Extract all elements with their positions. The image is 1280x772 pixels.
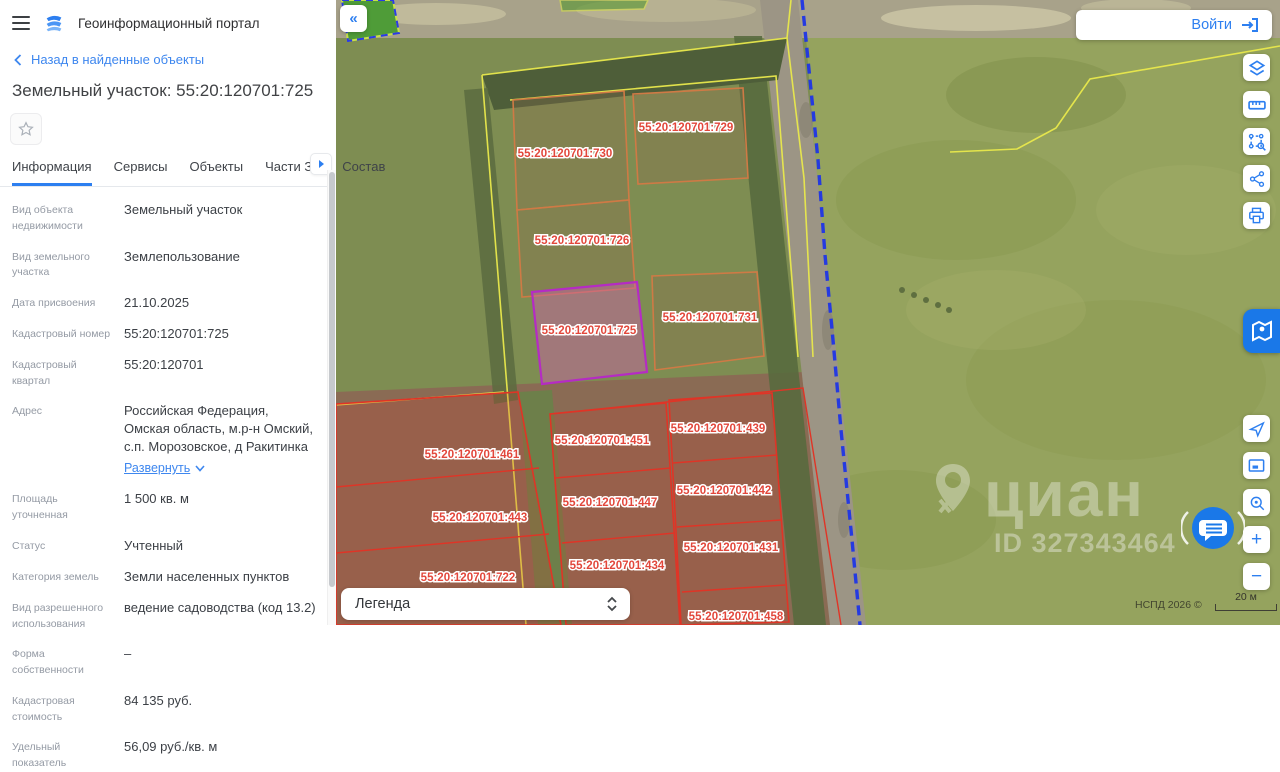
field-value: Учтенный [116, 537, 183, 555]
field-value: ведение садоводства (код 13.2) [116, 599, 316, 633]
parcel-726[interactable] [517, 200, 635, 297]
menu-button[interactable] [12, 16, 30, 30]
area-select-button[interactable] [1243, 128, 1270, 155]
parcel-label: 55:20:120701:434 [570, 560, 665, 572]
print-icon [1247, 206, 1266, 225]
field-label: Категория земель [12, 568, 116, 586]
field-label: Адрес [12, 402, 116, 477]
field-row: Форма собственности– [12, 645, 316, 679]
parcel-label: 55:20:120701:722 [421, 572, 516, 584]
portal-logo-icon [43, 12, 65, 34]
parcel-label: 55:20:120701:730 [518, 148, 613, 160]
field-row: АдресРоссийская Федерация, Омская област… [12, 402, 316, 477]
field-row: Вид разрешенного использованияведение са… [12, 599, 316, 633]
coordinate-search-icon [1248, 494, 1266, 512]
field-row: Кадастровый номер55:20:120701:725 [12, 325, 316, 343]
favorite-button[interactable] [10, 113, 42, 145]
parcel-label: 55:20:120701:451 [555, 435, 650, 447]
nspd-map-icon [1250, 318, 1274, 344]
field-label: Вид разрешенного использования [12, 599, 116, 633]
login-arrow-icon [1240, 16, 1260, 34]
field-row: Площадь уточненная1 500 кв. м [12, 490, 316, 524]
field-label: Вид объекта недвижимости [12, 201, 116, 235]
parcel-label: 55:20:120701:458 [689, 611, 784, 623]
parcel-label: 55:20:120701:443 [433, 512, 528, 524]
collapse-panel-button[interactable]: « [340, 5, 367, 32]
scale-label: 20 м [1216, 591, 1276, 603]
field-value: Российская Федерация, Омская область, м.… [116, 402, 316, 477]
field-value: 1 500 кв. м [116, 490, 189, 524]
tab-2[interactable]: Объекты [189, 159, 243, 186]
tab-0[interactable]: Информация [12, 159, 92, 186]
field-row: Дата присвоения21.10.2025 [12, 294, 316, 312]
panel-header: Геоинформационный портал [0, 0, 336, 42]
field-row: Удельный показатель56,09 руб./кв. м [12, 738, 316, 772]
parcel-label: 55:20:120701:461 [425, 449, 520, 461]
field-value: 21.10.2025 [116, 294, 189, 312]
chat-bubble-icon [1181, 500, 1245, 556]
parcel-729[interactable] [633, 88, 748, 184]
login-button[interactable]: Войти [1076, 10, 1272, 40]
parcel-label: 55:20:120701:447 [563, 497, 658, 509]
field-label: Кадастровый квартал [12, 356, 116, 390]
field-row: Категория земельЗемли населенных пунктов [12, 568, 316, 586]
field-label: Вид земельного участка [12, 248, 116, 282]
chat-button[interactable] [1181, 500, 1245, 556]
zoom-in-button[interactable]: + [1243, 526, 1270, 553]
nspd-logo-button[interactable] [1243, 309, 1280, 353]
info-panel: Геоинформационный портал Назад в найденн… [0, 0, 336, 625]
field-label: Кадастровая стоимость [12, 692, 116, 726]
field-value: Земли населенных пунктов [116, 568, 289, 586]
parcel-label: 55:20:120701:731 [663, 312, 758, 324]
parcel-label: 55:20:120701:439 [671, 423, 766, 435]
unfold-icon [606, 596, 618, 612]
field-value: 56,09 руб./кв. м [116, 738, 217, 772]
minimap-button[interactable] [1243, 452, 1270, 479]
parcel-label: 55:20:120701:729 [639, 122, 734, 134]
star-icon [17, 120, 35, 138]
minimap-icon [1247, 456, 1266, 475]
field-row: Кадастровый квартал55:20:120701 [12, 356, 316, 390]
area-select-icon [1247, 132, 1267, 152]
page-title: Земельный участок: 55:20:120701:725 [0, 69, 336, 101]
panel-scrollbar[interactable] [327, 170, 336, 625]
field-label: Форма собственности [12, 645, 116, 679]
portal-title: Геоинформационный портал [78, 16, 259, 31]
map-viewport[interactable]: 55:20:120701:73055:20:120701:72955:20:12… [336, 0, 1280, 625]
field-row: Кадастровая стоимость84 135 руб. [12, 692, 316, 726]
field-row: Вид объекта недвижимостиЗемельный участо… [12, 201, 316, 235]
back-link-label: Назад в найденные объекты [31, 52, 204, 67]
field-label: Площадь уточненная [12, 490, 116, 524]
parcel-label: 55:20:120701:726 [535, 235, 630, 247]
ruler-icon [1247, 95, 1267, 115]
share-icon [1248, 170, 1266, 188]
print-button[interactable] [1243, 202, 1270, 229]
field-value: 55:20:120701 [116, 356, 204, 390]
parcel-label: 55:20:120701:442 [677, 485, 772, 497]
satellite-map[interactable]: 55:20:120701:73055:20:120701:72955:20:12… [336, 0, 1280, 625]
expand-address-link[interactable]: Развернуть [124, 460, 316, 477]
field-label: Удельный показатель [12, 738, 116, 772]
zoom-out-button[interactable]: − [1243, 563, 1270, 590]
back-link[interactable]: Назад в найденные объекты [0, 42, 336, 69]
field-value: 55:20:120701:725 [116, 325, 229, 343]
field-label: Кадастровый номер [12, 325, 116, 343]
field-value: 84 135 руб. [116, 692, 192, 726]
legend-label: Легенда [355, 596, 410, 612]
field-row: Вид земельного участкаЗемлепользование [12, 248, 316, 282]
scrollbar-thumb[interactable] [329, 172, 335, 587]
legend-dropdown[interactable]: Легенда [341, 588, 630, 620]
chevron-down-icon [195, 465, 205, 472]
chevron-left-icon [14, 54, 22, 66]
parcel-label: 55:20:120701:431 [684, 542, 779, 554]
scale-bar: 20 м [1215, 604, 1277, 611]
coordinate-search-button[interactable] [1243, 489, 1270, 516]
field-value: – [116, 645, 131, 679]
field-row: СтатусУчтенный [12, 537, 316, 555]
field-list: Вид объекта недвижимостиЗемельный участо… [0, 187, 336, 772]
layers-button[interactable] [1243, 54, 1270, 81]
login-label: Войти [1191, 17, 1232, 33]
parcel-label-selected: 55:20:120701:725 [542, 325, 637, 337]
locate-button[interactable] [1243, 415, 1270, 442]
chevrons-left-icon: « [349, 10, 357, 27]
field-value: Земельный участок [116, 201, 242, 235]
locate-arrow-icon [1248, 420, 1266, 438]
layers-icon [1247, 58, 1267, 78]
tab-bar: ИнформацияСервисыОбъектыЧасти ЗУСостав [0, 145, 336, 187]
share-button[interactable] [1243, 165, 1270, 192]
tab-1[interactable]: Сервисы [114, 159, 168, 186]
tab-4[interactable]: Состав [342, 159, 385, 186]
field-label: Статус [12, 537, 116, 555]
measure-button[interactable] [1243, 91, 1270, 118]
chevron-right-icon [318, 159, 325, 169]
field-value: Землепользование [116, 248, 240, 282]
field-label: Дата присвоения [12, 294, 116, 312]
map-attribution: НСПД 2026 © [1135, 599, 1202, 611]
